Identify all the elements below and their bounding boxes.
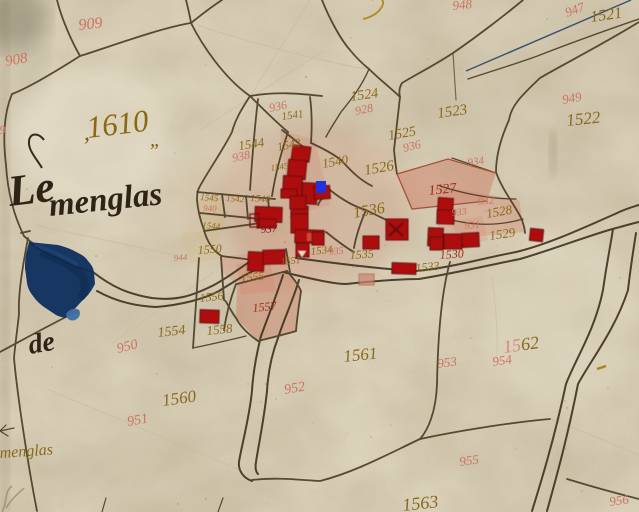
svg-text:1557: 1557 (252, 298, 278, 315)
svg-text:948: 948 (452, 0, 473, 13)
svg-text:1546: 1546 (250, 193, 271, 205)
svg-text:1551: 1551 (280, 255, 301, 268)
svg-text:1522: 1522 (565, 107, 601, 130)
svg-text:955: 955 (458, 451, 480, 469)
svg-text:1527: 1527 (428, 181, 458, 199)
svg-text:1554: 1554 (157, 323, 186, 341)
svg-text:1545: 1545 (200, 192, 219, 203)
svg-text:1555: 1555 (240, 269, 265, 285)
svg-text:937: 937 (260, 223, 278, 236)
svg-text:,: , (84, 120, 90, 146)
svg-text:909: 909 (78, 15, 104, 34)
svg-text:932: 932 (477, 194, 495, 208)
svg-text:1542: 1542 (226, 193, 245, 204)
svg-text:931: 931 (464, 219, 480, 232)
svg-text:1535: 1535 (349, 246, 374, 262)
svg-text:944: 944 (173, 252, 188, 263)
svg-text:1533: 1533 (415, 259, 440, 275)
svg-text:1530: 1530 (439, 246, 464, 262)
svg-text:954: 954 (491, 351, 513, 369)
svg-text:935: 935 (328, 245, 344, 258)
svg-text:953: 953 (436, 353, 458, 371)
svg-text:933: 933 (451, 206, 467, 219)
svg-text:de: de (26, 326, 57, 361)
svg-text:1550: 1550 (197, 241, 222, 257)
svg-text:1563: 1563 (401, 491, 439, 512)
svg-text:1561: 1561 (342, 344, 378, 366)
svg-text:1544: 1544 (202, 220, 221, 231)
svg-text:„: „ (150, 129, 161, 151)
svg-text:934: 934 (467, 155, 486, 169)
svg-text:956: 956 (608, 491, 630, 509)
svg-text:940: 940 (203, 203, 217, 213)
svg-text:1556: 1556 (199, 289, 224, 305)
svg-text:1558: 1558 (206, 320, 234, 338)
